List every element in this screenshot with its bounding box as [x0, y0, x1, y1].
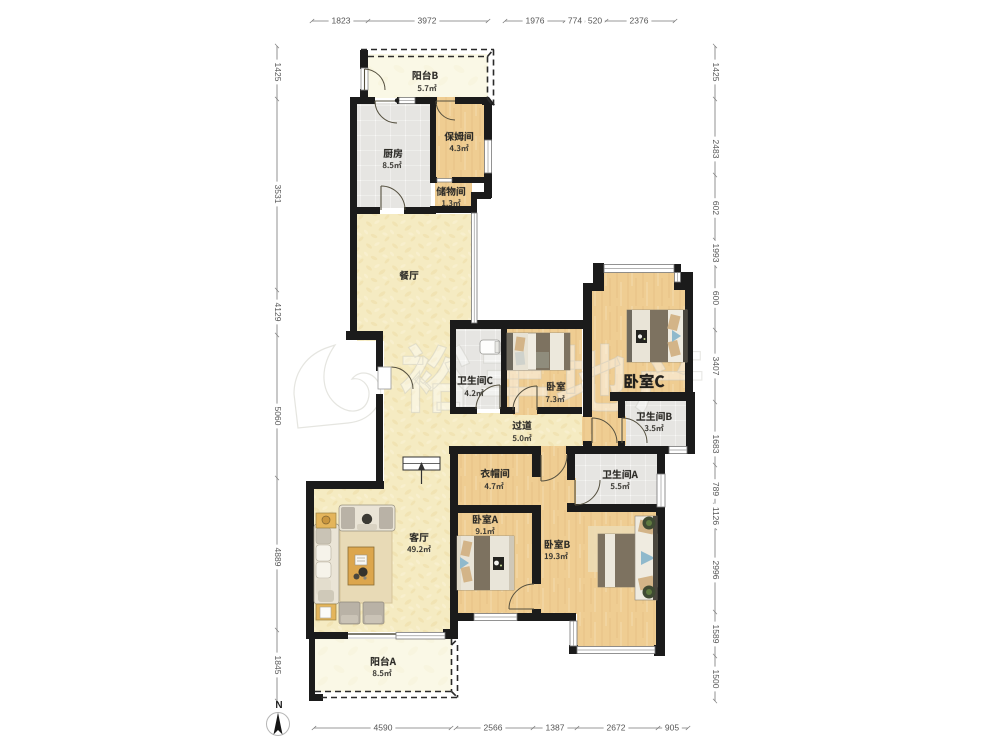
svg-text:1500: 1500: [711, 670, 721, 689]
svg-text:1976: 1976: [526, 15, 545, 25]
svg-text:2566: 2566: [484, 722, 503, 732]
svg-text:789: 789: [711, 482, 721, 496]
svg-text:2483: 2483: [711, 140, 721, 159]
svg-text:1425: 1425: [711, 63, 721, 82]
svg-text:2376: 2376: [630, 15, 649, 25]
svg-text:2996: 2996: [711, 561, 721, 580]
svg-text:520: 520: [588, 15, 602, 25]
svg-text:2672: 2672: [607, 722, 626, 732]
svg-text:5060: 5060: [273, 407, 283, 426]
svg-text:1126: 1126: [711, 507, 721, 526]
svg-text:3972: 3972: [418, 15, 437, 25]
svg-text:4889: 4889: [273, 548, 283, 567]
svg-text:3407: 3407: [711, 357, 721, 376]
svg-text:600: 600: [711, 291, 721, 305]
svg-text:1683: 1683: [711, 435, 721, 454]
svg-text:1823: 1823: [332, 15, 351, 25]
svg-text:602: 602: [711, 201, 721, 215]
svg-text:1589: 1589: [711, 625, 721, 644]
svg-text:3531: 3531: [273, 185, 283, 204]
svg-text:1425: 1425: [273, 63, 283, 82]
svg-text:4129: 4129: [273, 303, 283, 322]
svg-text:1387: 1387: [546, 722, 565, 732]
svg-text:774: 774: [568, 15, 582, 25]
svg-text:905: 905: [665, 722, 679, 732]
svg-text:4590: 4590: [374, 722, 393, 732]
svg-text:N: N: [275, 700, 282, 711]
svg-text:1993: 1993: [711, 244, 721, 263]
svg-text:1845: 1845: [273, 656, 283, 675]
